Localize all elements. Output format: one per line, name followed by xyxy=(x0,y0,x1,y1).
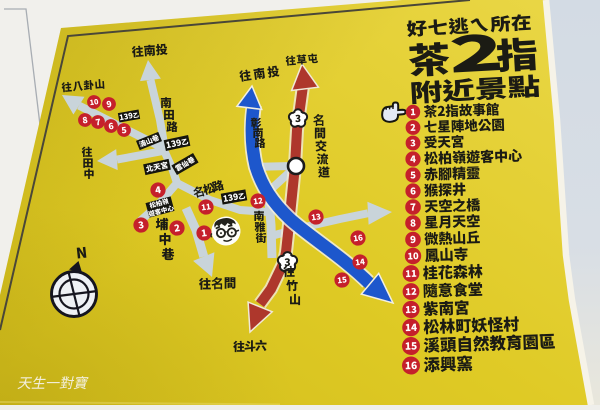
svg-text:3: 3 xyxy=(410,135,416,149)
svg-text:5: 5 xyxy=(410,167,416,181)
svg-text:4: 4 xyxy=(410,151,416,165)
svg-text:6: 6 xyxy=(410,183,416,197)
svg-text:12: 12 xyxy=(405,284,417,298)
svg-text:道: 道 xyxy=(318,164,330,181)
svg-text:名: 名 xyxy=(211,273,224,292)
svg-text:南: 南 xyxy=(252,64,266,83)
svg-text:12: 12 xyxy=(252,195,263,207)
svg-text:路: 路 xyxy=(255,135,266,151)
svg-text:投: 投 xyxy=(266,62,280,81)
svg-text:中: 中 xyxy=(84,166,95,182)
svg-text:7: 7 xyxy=(410,199,416,213)
svg-text:山: 山 xyxy=(94,77,106,93)
svg-text:1: 1 xyxy=(410,105,416,118)
svg-text:8: 8 xyxy=(410,215,416,229)
svg-text:街: 街 xyxy=(256,230,267,246)
svg-text:3: 3 xyxy=(295,111,301,125)
svg-text:間: 間 xyxy=(224,273,237,292)
svg-text:15: 15 xyxy=(405,337,418,352)
svg-text:天生一對寶: 天生一對寶 xyxy=(16,373,90,393)
svg-text:南: 南 xyxy=(143,42,156,60)
svg-text:9: 9 xyxy=(410,232,416,246)
svg-text:15: 15 xyxy=(336,274,347,286)
svg-text:往: 往 xyxy=(238,66,252,85)
svg-text:往: 往 xyxy=(131,43,144,61)
svg-text:13: 13 xyxy=(405,302,417,316)
svg-text:11: 11 xyxy=(405,266,417,280)
svg-text:路: 路 xyxy=(166,119,178,135)
svg-text:草: 草 xyxy=(296,52,308,68)
svg-text:六: 六 xyxy=(255,337,267,354)
svg-text:16: 16 xyxy=(352,232,363,244)
svg-text:14: 14 xyxy=(354,256,365,268)
svg-text:山: 山 xyxy=(289,291,301,308)
svg-text:10: 10 xyxy=(407,248,419,262)
svg-text:往: 往 xyxy=(199,274,212,293)
svg-text:屯: 屯 xyxy=(307,51,319,67)
svg-text:13: 13 xyxy=(310,211,321,223)
svg-text:14: 14 xyxy=(405,320,417,334)
svg-text:2: 2 xyxy=(410,120,416,134)
svg-text:N: N xyxy=(75,242,88,264)
svg-text:11: 11 xyxy=(200,201,211,213)
svg-text:添興窯: 添興窯 xyxy=(423,350,473,376)
svg-text:16: 16 xyxy=(405,357,418,372)
svg-text:巷: 巷 xyxy=(161,244,174,263)
svg-text:投: 投 xyxy=(155,41,168,59)
